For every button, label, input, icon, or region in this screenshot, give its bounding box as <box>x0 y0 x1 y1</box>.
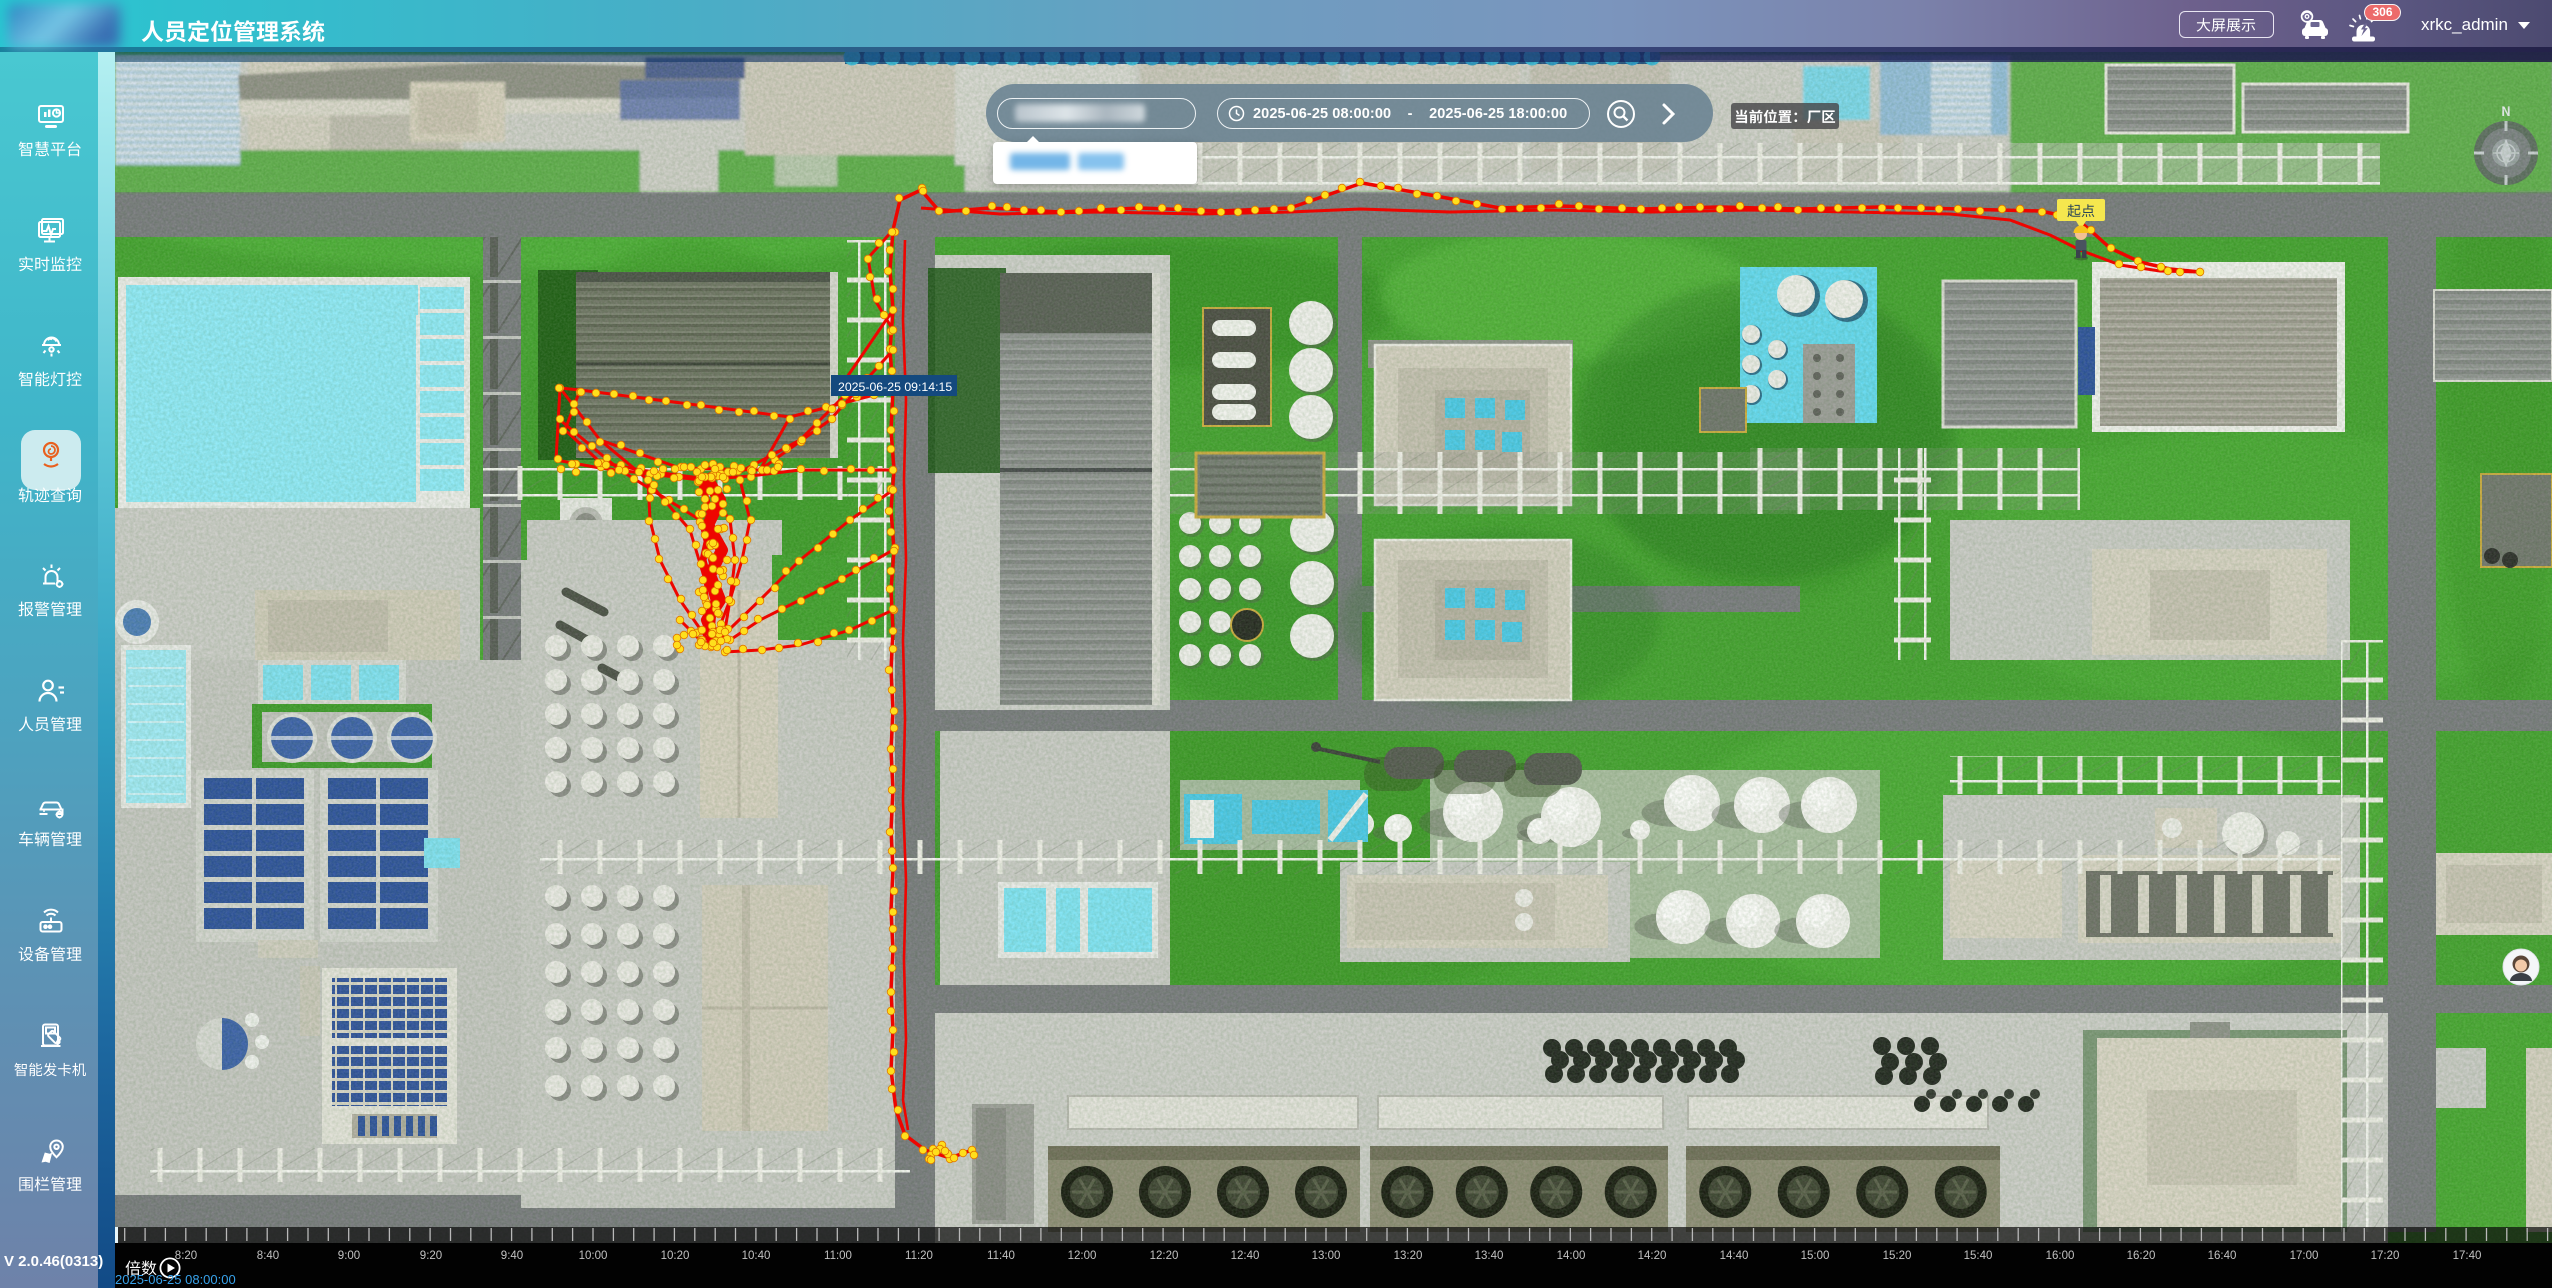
svg-text:2025-06-25 09:14:15: 2025-06-25 09:14:15 <box>838 380 952 394</box>
